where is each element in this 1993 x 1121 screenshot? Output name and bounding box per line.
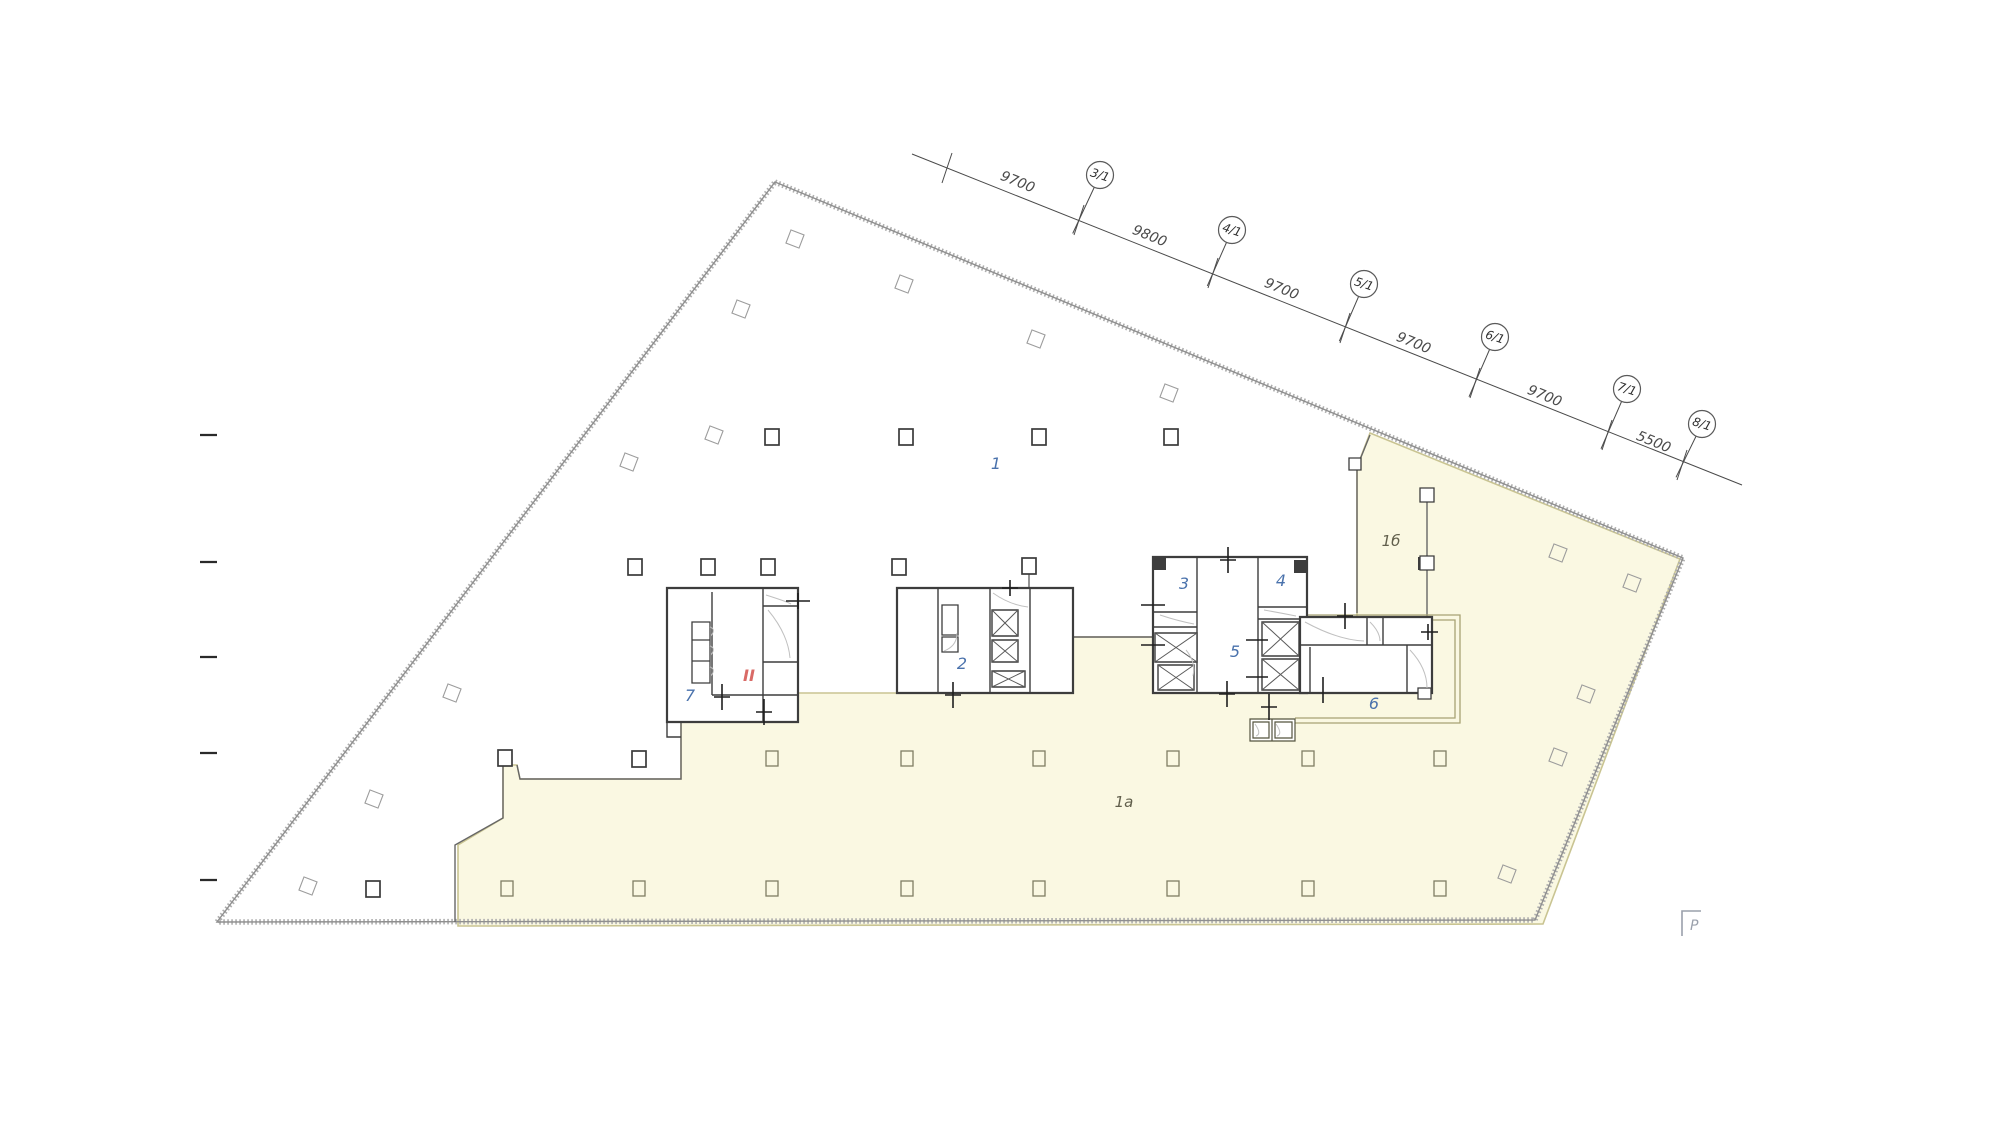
dimension-label: 9700 bbox=[998, 168, 1037, 196]
dimension-label: 5500 bbox=[1634, 428, 1673, 456]
column-square bbox=[1032, 429, 1046, 445]
left-ruler-layer bbox=[200, 435, 217, 880]
column-square bbox=[628, 559, 642, 575]
dimension-label: 9800 bbox=[1130, 222, 1169, 250]
page-marker-layer: Р bbox=[1682, 911, 1701, 936]
dimension-label: 9700 bbox=[1262, 275, 1301, 303]
column-square-rotated bbox=[365, 790, 383, 808]
vestibule-double-box bbox=[1250, 719, 1295, 741]
room-number-label: 3 bbox=[1179, 574, 1189, 593]
column-square-rotated bbox=[1027, 330, 1045, 348]
column-square bbox=[899, 429, 913, 445]
column-square bbox=[1164, 429, 1178, 445]
column-square bbox=[701, 559, 715, 575]
floor-plan-drawing: 3/14/15/16/17/18/19700980097009700970055… bbox=[0, 0, 1993, 1121]
column-square bbox=[498, 750, 512, 766]
core-7-closets bbox=[692, 622, 710, 683]
column-square bbox=[1022, 558, 1036, 574]
core-6-outer-walls bbox=[1300, 617, 1432, 693]
zone-label: 1а bbox=[1115, 793, 1134, 811]
room-number-label: 2 bbox=[957, 654, 967, 673]
column-square-rotated bbox=[732, 300, 750, 318]
zone-label: 1б bbox=[1382, 532, 1401, 550]
column-square-rotated bbox=[620, 453, 638, 471]
core-2-closets bbox=[942, 605, 958, 652]
column-square-rotated bbox=[299, 877, 317, 895]
room-number-label: 4 bbox=[1276, 571, 1286, 590]
vestibule-box-walls bbox=[1250, 719, 1295, 741]
room-number-label: 6 bbox=[1369, 694, 1379, 713]
column-square bbox=[632, 751, 646, 767]
dimension-label: 9700 bbox=[1394, 329, 1433, 357]
room-number-label: 5 bbox=[1230, 642, 1240, 661]
column-square bbox=[892, 559, 906, 575]
room-number-label: 7 bbox=[685, 686, 696, 705]
room-number-label: 1 bbox=[991, 454, 1001, 473]
column-square-rotated bbox=[705, 426, 723, 444]
column-square bbox=[761, 559, 775, 575]
stair-label: II bbox=[743, 666, 755, 685]
core-6-notch bbox=[1418, 688, 1431, 699]
page-marker-label: Р bbox=[1690, 918, 1699, 934]
column-square bbox=[366, 881, 380, 897]
column-square-rotated bbox=[443, 684, 461, 702]
column-square-rotated bbox=[895, 275, 913, 293]
column-square-rotated bbox=[1160, 384, 1178, 402]
core-2-outer-walls bbox=[897, 588, 1073, 693]
core-2-elevator-block bbox=[897, 588, 1073, 693]
column-square-rotated bbox=[786, 230, 804, 248]
core-7-stair-block bbox=[667, 588, 798, 737]
column-square bbox=[765, 429, 779, 445]
floor-plan-viewport: 3/14/15/16/17/18/19700980097009700970055… bbox=[0, 0, 1993, 1121]
dimension-station-tick bbox=[942, 153, 952, 183]
